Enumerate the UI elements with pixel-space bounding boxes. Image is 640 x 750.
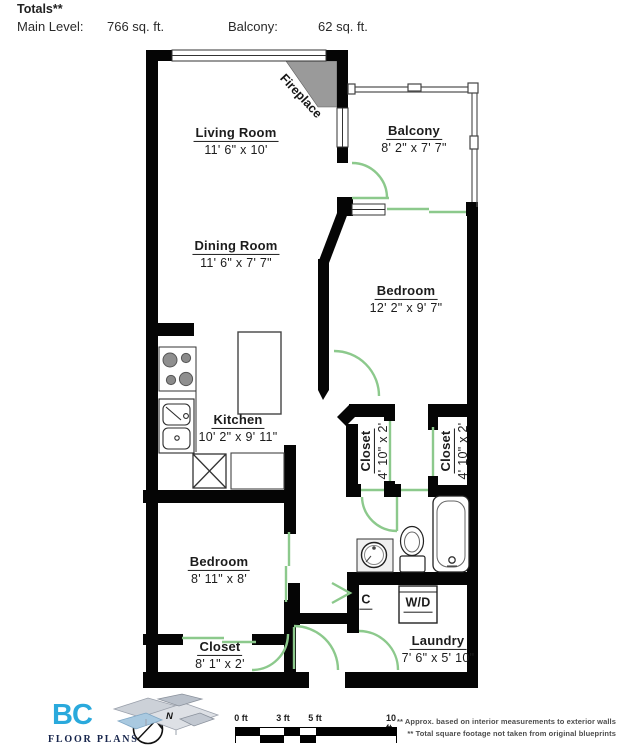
laundry-label: Laundry 7' 6" x 5' 10" — [402, 633, 475, 667]
footnote-line2: ** Total square footage not taken from o… — [296, 728, 616, 740]
washer-dryer-label: W/D — [404, 596, 433, 613]
refrigerator-icon — [193, 454, 226, 488]
toilet-icon — [400, 527, 425, 573]
bedroom-second-label: Bedroom 8' 11" x 8' — [188, 554, 250, 588]
closet-hall-right-label: Closet 4' 10" x 2' — [438, 423, 472, 480]
bathtub-icon — [433, 496, 469, 572]
kitchen-sink-icon — [159, 399, 194, 453]
stove-icon — [159, 347, 196, 391]
north-label: N — [166, 711, 173, 722]
logo-floorplan-art — [96, 693, 231, 739]
footnotes: ** Approx. based on interior measurement… — [296, 716, 616, 740]
balcony-room-label: Balcony 8' 2" x 7' 7" — [381, 123, 447, 157]
logo-brand-text: BC — [52, 699, 92, 732]
bc-floor-plans-logo: BC FLOOR PLANS — [44, 697, 239, 749]
living-room-label: Living Room 11' 6" x 10' — [194, 125, 279, 159]
kitchen-label: Kitchen 10' 2" x 9' 11" — [198, 412, 277, 446]
dining-room-label: Dining Room 11' 6" x 7' 7" — [192, 238, 279, 272]
bedroom-main-label: Bedroom 12' 2" x 9' 7" — [370, 283, 443, 317]
floor-plan-page: Totals** Main Level: 766 sq. ft. Balcony… — [0, 0, 640, 750]
kitchen-island — [238, 332, 281, 414]
closet-c-label: C — [359, 593, 372, 610]
closet-hall-left-label: Closet 4' 10" x 2' — [358, 423, 392, 480]
logo-subtitle-text: FLOOR PLANS — [48, 734, 139, 745]
bathroom-sink-icon — [357, 539, 393, 572]
scale-tick-3: 3 ft — [276, 713, 290, 723]
kitchen-counter — [231, 453, 284, 489]
kitchen-fixtures — [159, 332, 284, 489]
footnote-line1: ** Approx. based on interior measurement… — [296, 716, 616, 728]
closet-bedroom-label: Closet 8' 1" x 2' — [195, 639, 245, 673]
